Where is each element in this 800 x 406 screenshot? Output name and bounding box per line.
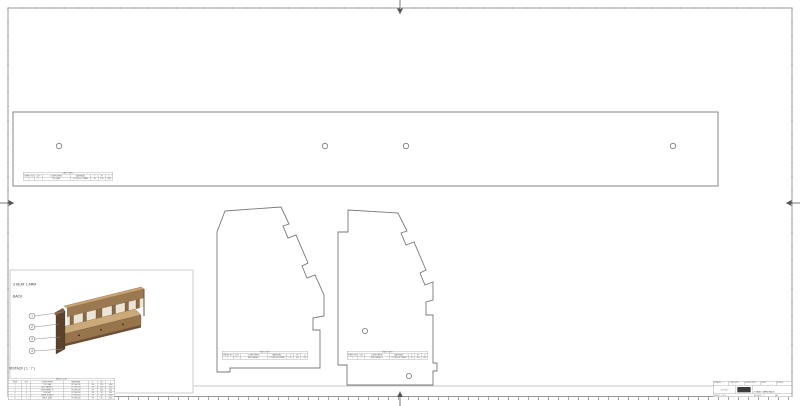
bench-screw-dot-1 (78, 334, 80, 336)
svg-text:4: 4 (31, 349, 33, 353)
top-rail-view (13, 112, 718, 186)
side-panel-left-outline (217, 207, 324, 372)
parts-list-table: PARTS LISTITEMQTYCOMPONENTMATERIALTWL11T… (8, 378, 115, 400)
bench-screw-dot-2 (100, 329, 102, 331)
title-block-footer-row: SHEET 1 OF 1 SCALE 1 : 7 A1 (713, 394, 791, 397)
top-rail-hole-3 (403, 143, 408, 148)
drawing-sheet: 1 2 3 4 3 SEAT 1 ARM BACK VIS (0, 0, 800, 406)
assembly-title-line2: BACK (13, 295, 36, 299)
side-panel-right-part-table: PART INFOSHEET NOQTYCOMPONENTMATERIALTWL… (347, 351, 428, 359)
assembly-title-line1: 3 SEAT 1 ARM (13, 283, 36, 287)
top-rail-hole-2 (322, 143, 327, 148)
balloon-3: 3 (29, 336, 60, 342)
svg-text:1: 1 (31, 314, 33, 318)
drawing-canvas: 1 2 3 4 (0, 0, 800, 406)
top-rail-outline (13, 112, 718, 186)
bench-screw-dot-3 (122, 324, 124, 326)
drawing-title: 3 SEAT 1 ARM BACK (753, 386, 792, 394)
center-mark-left-icon (0, 200, 14, 206)
title-block-scale-field: SCALE 1 : 7 (754, 394, 775, 397)
side-panel-right-hole-2 (406, 373, 411, 378)
title-block-main-row: studio 3 SEAT 1 ARM BACK (713, 386, 791, 394)
side-panel-right-hole-1 (362, 328, 367, 333)
assembly-title: 3 SEAT 1 ARM BACK (13, 275, 36, 307)
balloon-2: 2 (29, 324, 59, 330)
center-mark-bottom-icon (397, 392, 403, 406)
title-block: DRAWN CHECKED APPROVED DATE SCALE studio… (713, 381, 792, 397)
side-panel-left-view (217, 207, 324, 372)
side-panel-left-part-table: PART INFOSHEET NOQTYCOMPONENTMATERIALTWL… (222, 351, 308, 359)
svg-text:3: 3 (31, 337, 33, 341)
top-rail-hole-4 (670, 143, 675, 148)
assembly-view-label: VISTA20 ( 1 : 7 ) (9, 367, 35, 371)
center-mark-right-icon (786, 200, 800, 206)
logo-mark-cell (736, 386, 753, 394)
top-rail-hole-1 (56, 143, 61, 148)
top-rail-part-table: PART INFOSHEET NOQTYCOMPONENTMATERIALTWL… (23, 172, 113, 180)
logo-mark-icon (737, 387, 750, 392)
studio-logo-text: studio (713, 386, 735, 394)
title-block-size-field: A1 (775, 394, 791, 397)
bench-endcap-left (56, 311, 65, 354)
bench-3d-view (54, 287, 144, 354)
svg-text:2: 2 (31, 325, 33, 329)
center-mark-top-icon (397, 0, 403, 14)
title-block-sheet-field: SHEET 1 OF 1 (713, 394, 754, 397)
